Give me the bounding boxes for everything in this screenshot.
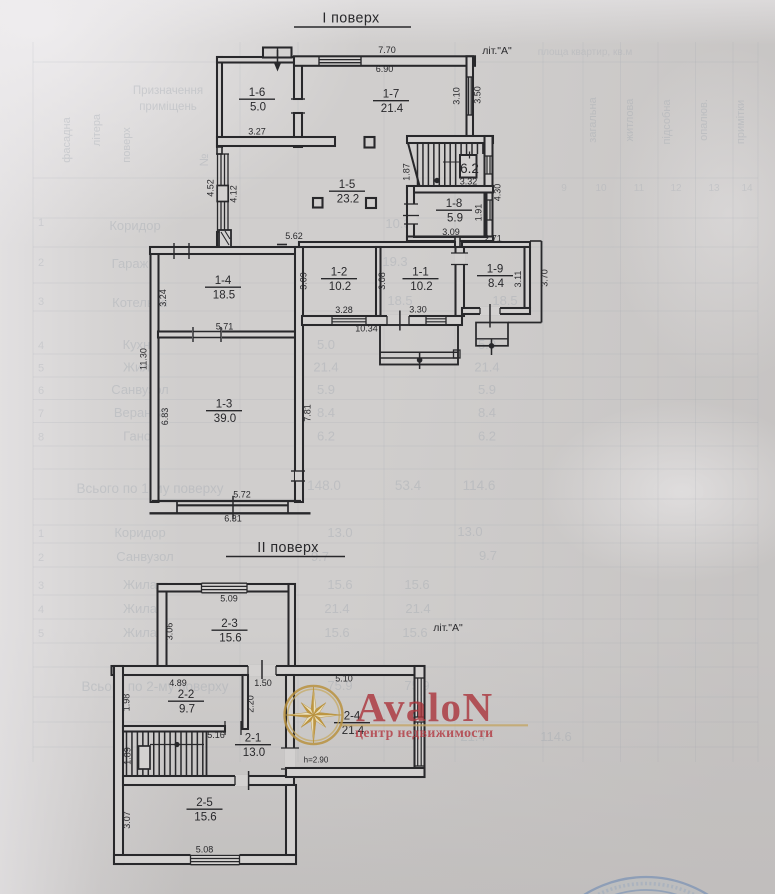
- svg-text:4.12: 4.12: [229, 185, 239, 203]
- svg-text:13.0: 13.0: [243, 747, 265, 759]
- svg-text:7.70: 7.70: [378, 45, 396, 55]
- svg-text:1-2: 1-2: [331, 267, 348, 279]
- svg-text:114.6: 114.6: [540, 729, 572, 744]
- svg-text:39.0: 39.0: [214, 413, 236, 425]
- svg-text:1.98: 1.98: [122, 694, 132, 712]
- svg-text:6.31: 6.31: [224, 514, 242, 524]
- svg-text:3.07: 3.07: [122, 811, 132, 829]
- svg-text:1-7: 1-7: [383, 89, 400, 101]
- svg-text:Жила: Жила: [123, 601, 158, 616]
- svg-text:9.7: 9.7: [179, 704, 195, 716]
- svg-text:3.27: 3.27: [248, 127, 266, 137]
- svg-text:1.89: 1.89: [123, 747, 133, 765]
- svg-text:5.08: 5.08: [196, 845, 214, 855]
- svg-text:приміщень: приміщень: [139, 101, 197, 113]
- svg-text:І поверх: І поверх: [322, 11, 379, 27]
- svg-text:фасадна: фасадна: [61, 116, 73, 162]
- svg-text:18.5: 18.5: [213, 290, 235, 302]
- svg-text:15.6: 15.6: [324, 625, 349, 640]
- svg-text:h=2.90: h=2.90: [304, 756, 329, 765]
- svg-text:6.2: 6.2: [317, 429, 335, 444]
- svg-text:3.28: 3.28: [335, 305, 353, 315]
- svg-text:1: 1: [38, 217, 44, 229]
- svg-text:1-8: 1-8: [446, 198, 463, 210]
- svg-text:Санвузол: Санвузол: [116, 549, 173, 564]
- svg-text:21.4: 21.4: [313, 360, 338, 375]
- svg-text:літ."А": літ."А": [433, 622, 463, 634]
- svg-text:3.70: 3.70: [540, 269, 550, 287]
- svg-text:21.4: 21.4: [324, 601, 349, 616]
- svg-text:№: №: [197, 153, 211, 166]
- svg-text:5.9: 5.9: [447, 213, 463, 225]
- svg-text:3: 3: [38, 296, 44, 308]
- svg-text:5.10: 5.10: [335, 674, 353, 684]
- svg-text:15.6: 15.6: [404, 577, 429, 592]
- svg-text:13: 13: [708, 183, 720, 194]
- svg-text:5.09: 5.09: [220, 594, 238, 604]
- svg-text:4.52: 4.52: [206, 179, 216, 197]
- svg-text:3.09: 3.09: [299, 272, 309, 290]
- svg-text:1-6: 1-6: [249, 87, 266, 99]
- svg-text:6.2: 6.2: [460, 161, 479, 176]
- svg-text:Жила: Жила: [123, 625, 158, 640]
- svg-text:ІІ поверх: ІІ поверх: [257, 540, 319, 556]
- svg-text:3.10: 3.10: [452, 87, 462, 105]
- svg-text:6.83: 6.83: [160, 408, 170, 426]
- svg-text:центр недвижимости: центр недвижимости: [355, 725, 493, 740]
- svg-text:Всього по 2-му поверху: Всього по 2-му поверху: [82, 679, 229, 694]
- svg-text:3.30: 3.30: [409, 305, 427, 315]
- svg-text:1.87: 1.87: [402, 163, 412, 181]
- svg-text:7.81: 7.81: [303, 404, 313, 422]
- svg-text:Призначення: Призначення: [133, 85, 203, 97]
- svg-text:1.50: 1.50: [254, 678, 272, 688]
- svg-text:5.0: 5.0: [317, 337, 335, 352]
- svg-text:загальна: загальна: [587, 96, 599, 142]
- svg-text:13.0: 13.0: [327, 525, 352, 540]
- svg-text:площа квартир, кв.м: площа квартир, кв.м: [538, 47, 633, 58]
- svg-text:2-1: 2-1: [245, 733, 262, 745]
- svg-text:1.91: 1.91: [474, 204, 484, 222]
- svg-text:10.34: 10.34: [355, 324, 378, 334]
- svg-text:12: 12: [670, 183, 682, 194]
- svg-text:5.62: 5.62: [285, 231, 303, 241]
- svg-text:2.20: 2.20: [246, 695, 256, 713]
- svg-text:5: 5: [38, 363, 44, 375]
- svg-text:літ."А": літ."А": [482, 45, 512, 57]
- svg-text:21.4: 21.4: [381, 103, 404, 115]
- svg-text:3.50: 3.50: [473, 86, 483, 104]
- svg-text:3.24: 3.24: [158, 289, 168, 307]
- svg-text:53.4: 53.4: [395, 478, 422, 493]
- svg-text:11.30: 11.30: [139, 348, 149, 370]
- svg-text:1-4: 1-4: [215, 275, 232, 287]
- svg-text:2-3: 2-3: [221, 618, 238, 630]
- svg-text:4: 4: [38, 604, 44, 616]
- svg-text:5.16: 5.16: [207, 730, 225, 740]
- svg-text:15.6: 15.6: [402, 625, 427, 640]
- svg-text:23.2: 23.2: [337, 194, 359, 206]
- svg-text:10.2: 10.2: [410, 281, 432, 293]
- svg-text:11: 11: [634, 183, 645, 194]
- svg-text:Гараж: Гараж: [112, 256, 149, 271]
- svg-text:14: 14: [741, 183, 753, 194]
- svg-text:5.9: 5.9: [317, 382, 335, 397]
- svg-text:1-5: 1-5: [339, 179, 356, 191]
- svg-text:15.6: 15.6: [194, 812, 216, 824]
- svg-text:Жила: Жила: [123, 577, 158, 592]
- svg-text:3.09: 3.09: [442, 227, 460, 237]
- svg-text:15.6: 15.6: [327, 577, 352, 592]
- svg-text:114.6: 114.6: [463, 478, 496, 493]
- svg-text:21.4: 21.4: [474, 360, 499, 375]
- svg-text:4: 4: [38, 340, 44, 352]
- svg-text:5.71: 5.71: [216, 322, 234, 332]
- svg-text:6: 6: [38, 385, 44, 397]
- svg-text:3.08: 3.08: [377, 272, 387, 290]
- svg-text:6.2: 6.2: [478, 429, 496, 444]
- svg-text:13.0: 13.0: [457, 524, 482, 539]
- svg-text:поверх: поверх: [121, 127, 133, 163]
- svg-text:5.72: 5.72: [233, 490, 251, 500]
- svg-text:3: 3: [38, 580, 44, 592]
- svg-text:8.4: 8.4: [478, 405, 496, 420]
- svg-text:Коридор: Коридор: [114, 525, 165, 540]
- svg-text:примітки: примітки: [735, 100, 747, 144]
- svg-text:1-3: 1-3: [216, 399, 233, 411]
- svg-text:8.4: 8.4: [488, 278, 505, 290]
- svg-text:8: 8: [38, 432, 44, 444]
- svg-text:5.9: 5.9: [478, 382, 496, 397]
- svg-text:4.30: 4.30: [493, 184, 503, 202]
- svg-text:18.5: 18.5: [492, 293, 517, 308]
- svg-text:підсобна: підсобна: [661, 99, 673, 145]
- svg-text:2: 2: [38, 552, 44, 564]
- svg-text:3.11: 3.11: [513, 271, 523, 288]
- svg-text:Коридор: Коридор: [109, 218, 160, 233]
- svg-text:1-9: 1-9: [487, 264, 504, 276]
- svg-text:19.3: 19.3: [382, 254, 407, 269]
- svg-text:9.7: 9.7: [479, 548, 497, 563]
- svg-text:літера: літера: [91, 113, 103, 146]
- svg-text:8.4: 8.4: [317, 405, 335, 420]
- svg-text:6.90: 6.90: [376, 64, 394, 74]
- svg-text:житлова: житлова: [624, 98, 636, 142]
- svg-text:3.06: 3.06: [165, 623, 175, 641]
- svg-text:10.2: 10.2: [329, 281, 351, 293]
- svg-text:9: 9: [561, 183, 567, 194]
- svg-text:4.89: 4.89: [169, 678, 187, 688]
- svg-text:2-5: 2-5: [196, 797, 213, 809]
- svg-text:15.6: 15.6: [219, 633, 241, 645]
- svg-text:2-2: 2-2: [178, 689, 195, 701]
- svg-text:5.0: 5.0: [250, 102, 266, 114]
- svg-text:3.32: 3.32: [460, 177, 478, 187]
- svg-text:опалюв.: опалюв.: [698, 99, 710, 141]
- svg-text:1-1: 1-1: [412, 267, 429, 279]
- svg-text:AvaloN: AvaloN: [356, 684, 493, 730]
- svg-text:148.0: 148.0: [307, 478, 341, 493]
- svg-text:5: 5: [38, 628, 44, 640]
- svg-text:Санвузол: Санвузол: [111, 382, 168, 397]
- svg-text:2: 2: [38, 257, 44, 269]
- svg-text:10: 10: [595, 183, 607, 194]
- svg-text:21.4: 21.4: [405, 601, 430, 616]
- svg-text:7: 7: [38, 408, 44, 420]
- svg-text:1: 1: [38, 528, 44, 540]
- svg-text:2.71: 2.71: [484, 234, 502, 244]
